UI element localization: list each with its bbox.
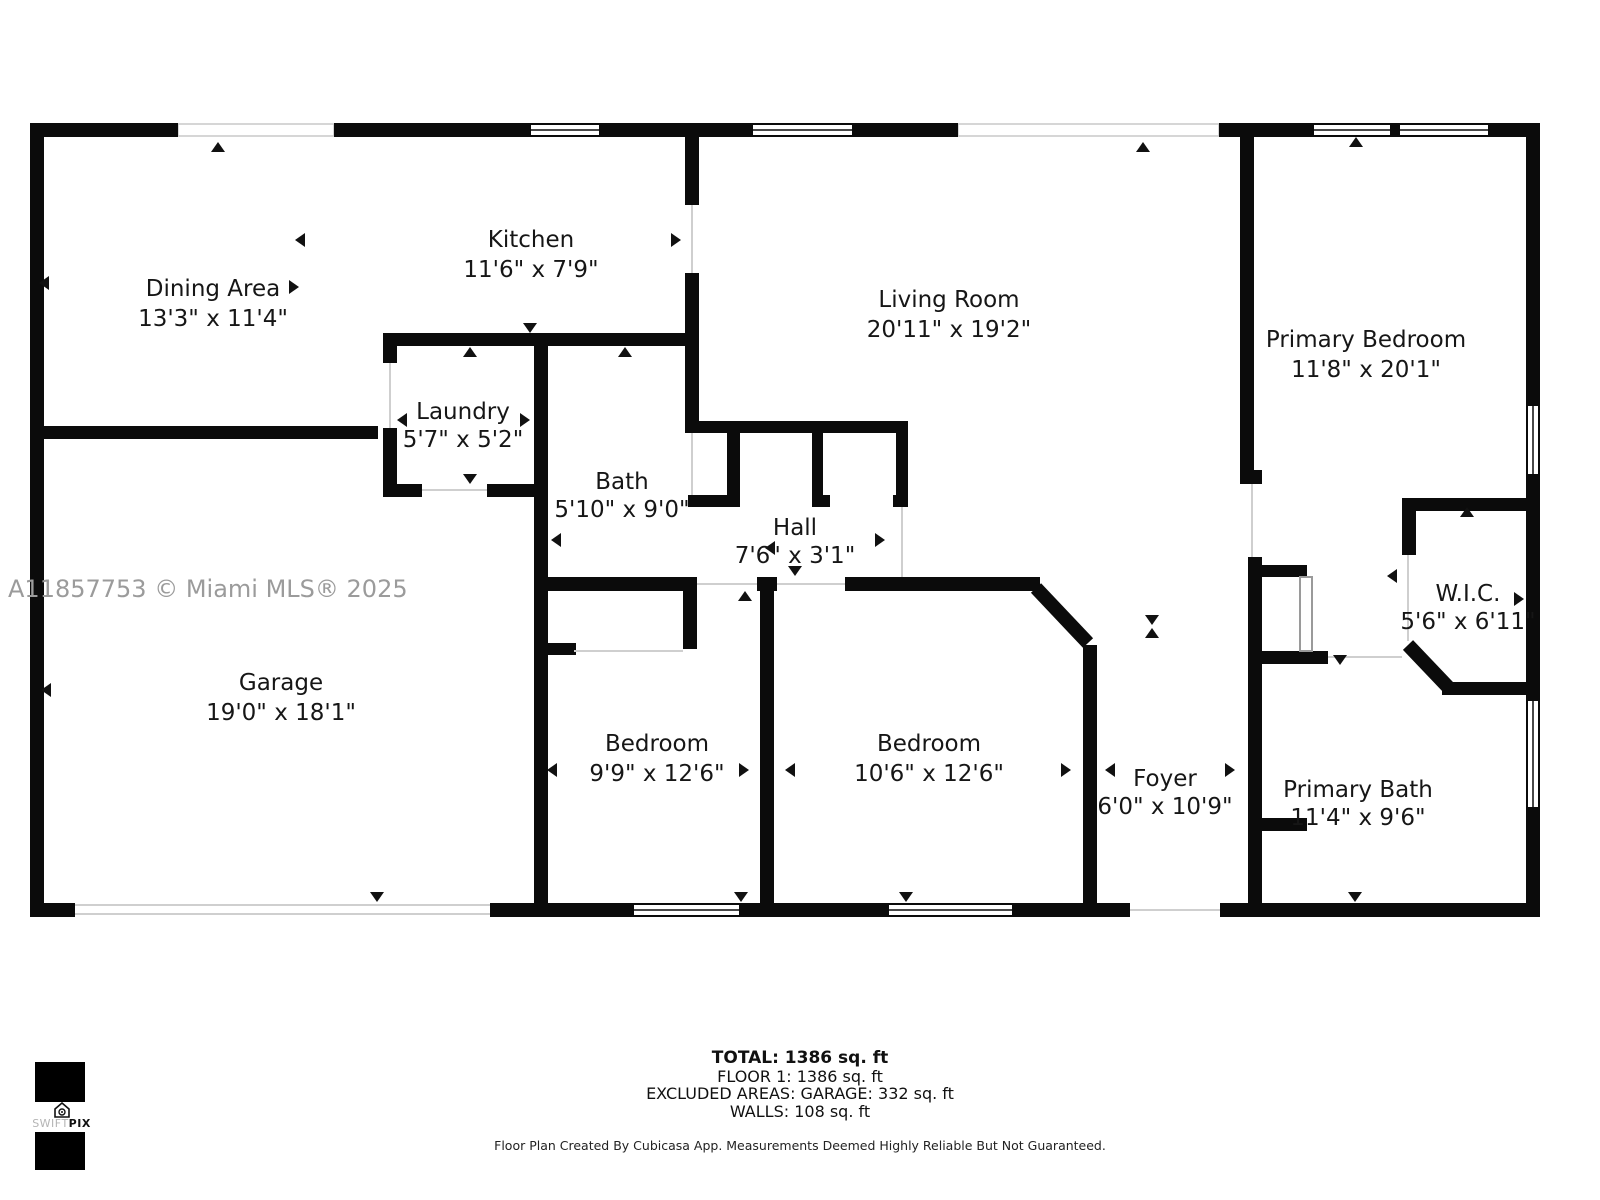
room-name-label: Kitchen bbox=[488, 227, 574, 253]
room-name-label: Primary Bath bbox=[1283, 777, 1433, 803]
logo-middle: SWIFTPIX bbox=[35, 1102, 88, 1132]
foyer-closet-door bbox=[1300, 577, 1312, 651]
room-dims-label: 5'7" x 5'2" bbox=[403, 427, 524, 453]
room-labels: Dining Area 13'3" x 11'4" Kitchen 11'6" … bbox=[138, 227, 1536, 831]
logo-pix-text: PIX bbox=[69, 1117, 91, 1130]
room-name-label: Garage bbox=[239, 670, 323, 696]
room-name-label: Living Room bbox=[878, 287, 1019, 313]
logo-swift-text: SWIFT bbox=[32, 1117, 68, 1130]
window-icon bbox=[752, 124, 853, 136]
window-icon bbox=[1527, 405, 1539, 475]
room-name-label: Dining Area bbox=[146, 276, 281, 302]
room-name-label: Laundry bbox=[416, 399, 510, 425]
room-name-label: Primary Bedroom bbox=[1266, 327, 1466, 353]
summary-excluded: EXCLUDED AREAS: GARAGE: 332 sq. ft bbox=[0, 1085, 1600, 1103]
logo-wordmark: SWIFTPIX bbox=[32, 1118, 91, 1129]
room-name-label: Bedroom bbox=[877, 731, 981, 757]
room-dims-label: 19'0" x 18'1" bbox=[206, 700, 356, 726]
room-name-label: Bedroom bbox=[605, 731, 709, 757]
room-dims-label: 11'6" x 7'9" bbox=[463, 257, 598, 283]
room-dims-label: 6'0" x 10'9" bbox=[1097, 794, 1232, 820]
room-dims-label: 5'10" x 9'0" bbox=[554, 497, 689, 523]
window-icon bbox=[1313, 124, 1391, 136]
summary-total: TOTAL: 1386 sq. ft bbox=[0, 1050, 1600, 1068]
room-dims-label: 20'11" x 19'2" bbox=[867, 317, 1031, 343]
mls-watermark: A11857753 © Miami MLS® 2025 bbox=[8, 575, 408, 603]
floorplan-drawing: Dining Area 13'3" x 11'4" Kitchen 11'6" … bbox=[0, 0, 1600, 1200]
room-dims-label: 11'8" x 20'1" bbox=[1291, 357, 1441, 383]
room-name-label: Bath bbox=[595, 469, 648, 495]
room-name-label: W.I.C. bbox=[1436, 581, 1501, 607]
floorplan-page: { "watermark": "A11857753 © Miami MLS® 2… bbox=[0, 0, 1600, 1200]
disclaimer-text: Floor Plan Created By Cubicasa App. Meas… bbox=[0, 1138, 1600, 1153]
window-icon bbox=[1527, 700, 1539, 808]
room-dims-label: 11'4" x 9'6" bbox=[1290, 805, 1425, 831]
window-icon bbox=[888, 904, 1013, 916]
room-dims-label: 5'6" x 6'11" bbox=[1400, 609, 1535, 635]
summary-floor: FLOOR 1: 1386 sq. ft bbox=[0, 1068, 1600, 1086]
summary-walls: WALLS: 108 sq. ft bbox=[0, 1103, 1600, 1121]
room-name-label: Hall bbox=[773, 515, 817, 541]
logo-bottom-block bbox=[35, 1132, 85, 1170]
area-summary: TOTAL: 1386 sq. ft FLOOR 1: 1386 sq. ft … bbox=[0, 1050, 1600, 1121]
window-icon bbox=[633, 904, 740, 916]
room-name-label: Foyer bbox=[1133, 766, 1197, 792]
room-dims-label: 13'3" x 11'4" bbox=[138, 306, 288, 332]
logo-top-block bbox=[35, 1062, 85, 1102]
swiftpix-logo: SWIFTPIX bbox=[35, 1062, 88, 1170]
window-icon bbox=[530, 124, 600, 136]
room-dims-label: 9'9" x 12'6" bbox=[589, 761, 724, 787]
window-icon bbox=[1399, 124, 1489, 136]
room-dims-label: 7'6" x 3'1" bbox=[735, 543, 856, 569]
swiftpix-house-icon bbox=[53, 1102, 71, 1118]
room-dims-label: 10'6" x 12'6" bbox=[854, 761, 1004, 787]
